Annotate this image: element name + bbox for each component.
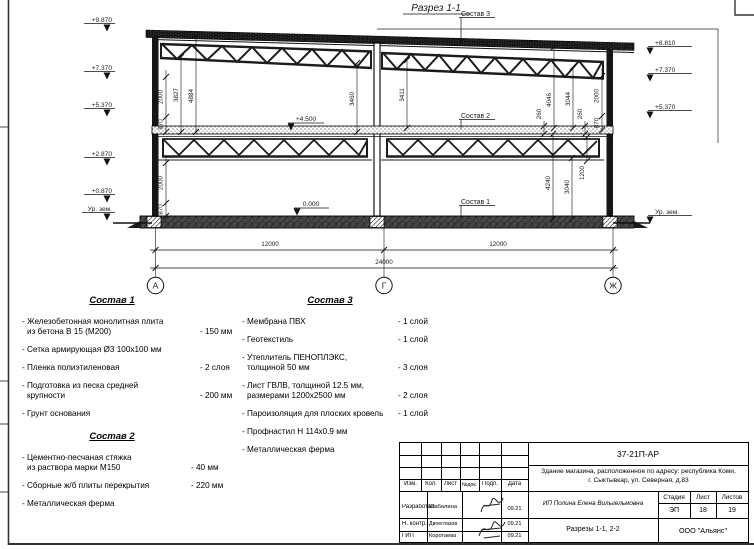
title-block: Изм. Кол. Лист №док. Подп. Дата Разработ… bbox=[399, 442, 749, 543]
signature-scribble bbox=[478, 494, 508, 516]
tb-col-list: Лист bbox=[441, 481, 460, 487]
axis-label: Ж bbox=[609, 281, 617, 291]
dim-label: 3460 bbox=[349, 92, 356, 107]
foundation-pad-zh bbox=[603, 217, 617, 228]
tb-col-kol: Кол. bbox=[421, 481, 441, 487]
level-mark: +9.870 bbox=[92, 17, 113, 24]
list-item: - Лист ГВЛВ, толщиной 12.5 мм,размерами … bbox=[242, 381, 434, 401]
list-item: - Металлическая ферма bbox=[22, 499, 237, 509]
level-mark: +0.870 bbox=[92, 188, 113, 195]
composition-3-list: Состав 3 - Мембрана ПВХ - 1 слой - Геоте… bbox=[242, 296, 434, 463]
list-item: - Грунт основания bbox=[22, 409, 237, 419]
tb-sheet-title: Разрезы 1-1, 2-2 bbox=[528, 526, 658, 533]
list-item: - Пароизоляция для плоских кровель - 1 с… bbox=[242, 409, 434, 419]
dim-label: 3411 bbox=[399, 88, 406, 102]
ground-level-mark: Ур. зем. bbox=[655, 209, 679, 216]
level-mark: +4.500 bbox=[296, 116, 317, 123]
list-item: - Сетка армирующая Ø3 100х100 мм bbox=[22, 345, 237, 355]
tb-doc-code: 37-21П-АР bbox=[528, 449, 748, 459]
composition-1-list: Состав 1 - Железобетонная монолитная пли… bbox=[22, 296, 237, 427]
dim-label: 260 bbox=[536, 108, 543, 119]
section-title-text: Разрез 1-1 bbox=[411, 3, 461, 14]
tb-list-h: Лист bbox=[690, 494, 716, 501]
level-mark: +5.370 bbox=[655, 104, 676, 111]
signature-scribble bbox=[476, 516, 508, 542]
dim-label: 870 bbox=[594, 117, 601, 128]
foundation-pad-a bbox=[147, 217, 161, 228]
tb-listov-h: Листов bbox=[716, 494, 748, 501]
axis-label: Г bbox=[382, 281, 387, 291]
dim-label: 2000 bbox=[158, 90, 165, 105]
composition-1-title: Состав 1 bbox=[22, 296, 202, 306]
level-mark: +5.370 bbox=[92, 102, 113, 109]
composition-2-title: Состав 2 bbox=[22, 432, 202, 442]
dim-label: 3044 bbox=[565, 92, 572, 107]
dim-label: 870 bbox=[158, 119, 165, 130]
list-item: - Подготовка из песка среднейкрупности -… bbox=[22, 381, 237, 401]
ground-level-mark: Ур. зем. bbox=[88, 206, 112, 213]
roof-truss-bay2 bbox=[381, 53, 604, 79]
span-dim-label: 12000 bbox=[489, 241, 507, 248]
list-item: - Пленка полиэтиленовая - 2 слоя bbox=[22, 363, 237, 373]
level-mark: 0.000 bbox=[303, 201, 320, 208]
span-dim-label: 12000 bbox=[261, 241, 279, 248]
list-item: - Мембрана ПВХ - 1 слой bbox=[242, 317, 434, 327]
elevation-marks-right: +8.810 +7.370 +5.370 Ур. зем. bbox=[613, 40, 692, 224]
list-item: - Цементно-песчаная стяжкаиз раствора ма… bbox=[22, 453, 237, 473]
tb-col-data: Дата bbox=[501, 481, 528, 487]
roof-truss-bay1 bbox=[160, 44, 372, 68]
list-item: - Железобетонная монолитная плитаиз бето… bbox=[22, 317, 237, 337]
tb-role: Н. контр. bbox=[402, 521, 427, 527]
tb-stage-v: ЭП bbox=[658, 507, 690, 514]
callout-label: Состав 1 bbox=[461, 199, 490, 206]
tb-listov-v: 19 bbox=[716, 507, 748, 514]
list-item: - Сборные ж/б плиты перекрытия - 220 мм bbox=[22, 481, 237, 491]
tb-col-ndoc: №док. bbox=[460, 482, 479, 488]
level-mark: +7.370 bbox=[655, 67, 676, 74]
level-mark: +7.370 bbox=[92, 65, 113, 72]
dim-label: 4046 bbox=[546, 93, 553, 108]
tb-name: Шабалина bbox=[429, 504, 457, 510]
dim-label: 4884 bbox=[188, 89, 195, 104]
callout-label: Состав 2 bbox=[461, 113, 490, 120]
list-item: - Геотекстиль - 1 слой bbox=[242, 335, 434, 345]
tb-object-line2: г. Сыктывкар, ул. Северная, д.83 bbox=[529, 477, 748, 484]
tb-name: Коротаева bbox=[429, 533, 456, 539]
dim-label: 3040 bbox=[564, 180, 571, 195]
tb-object-line1: Здание магазина, расположенное по адресу… bbox=[529, 468, 748, 475]
floor-truss-bay2 bbox=[381, 139, 604, 160]
ground-slab bbox=[127, 216, 648, 228]
tb-stage-h: Стадия bbox=[658, 494, 690, 501]
dim-label: 4240 bbox=[545, 176, 552, 191]
dim-label: 3827 bbox=[173, 88, 180, 103]
tb-role: ГИП bbox=[402, 533, 414, 539]
tb-col-izm: Изм. bbox=[400, 481, 421, 487]
axis-bubbles: А Г Ж bbox=[147, 277, 621, 293]
composition-2-list: Состав 2 - Цементно-песчаная стяжкаиз ра… bbox=[22, 432, 237, 517]
composition-3-title: Состав 3 bbox=[242, 296, 418, 306]
adjacent-frame-corner bbox=[735, 0, 754, 15]
floor-truss-bay1 bbox=[152, 139, 372, 160]
axis-label: А bbox=[153, 281, 159, 291]
tb-name: Двоеглазов bbox=[429, 521, 457, 527]
total-dim-label: 24000 bbox=[375, 259, 393, 266]
level-mark: +8.810 bbox=[655, 40, 676, 47]
tb-col-podp: Подп. bbox=[479, 481, 501, 487]
dim-label: 1200 bbox=[579, 166, 586, 181]
drawing-sheet: Разрез 1-1 bbox=[0, 0, 754, 549]
list-item: - Утеплитель ПЕНОПЛЭКС,толщиной 50 мм - … bbox=[242, 353, 434, 373]
dim-label: 870 bbox=[158, 204, 165, 215]
horizontal-dimensions: 12000 12000 24000 bbox=[150, 228, 618, 277]
elevation-marks-left: +9.870 +7.370 +5.370 +2.870 +0.870 Ур. з… bbox=[82, 17, 152, 223]
tb-designer: ИП Полина Елена Вильгельмовна bbox=[528, 500, 658, 507]
drawing-title: Разрез 1-1 bbox=[403, 3, 470, 14]
tb-company: ООО "Альянс" bbox=[658, 526, 748, 535]
dim-label: 2000 bbox=[594, 89, 601, 104]
foundation-pad-g bbox=[370, 217, 384, 228]
tb-list-v: 18 bbox=[690, 507, 716, 514]
list-item: - Профнастил Н 114х0.9 мм bbox=[242, 427, 434, 437]
dim-label: 260 bbox=[577, 108, 584, 119]
callout-label: Состав 3 bbox=[461, 11, 490, 18]
level-mark: +2.870 bbox=[92, 151, 113, 158]
dim-label: 2000 bbox=[158, 176, 165, 191]
